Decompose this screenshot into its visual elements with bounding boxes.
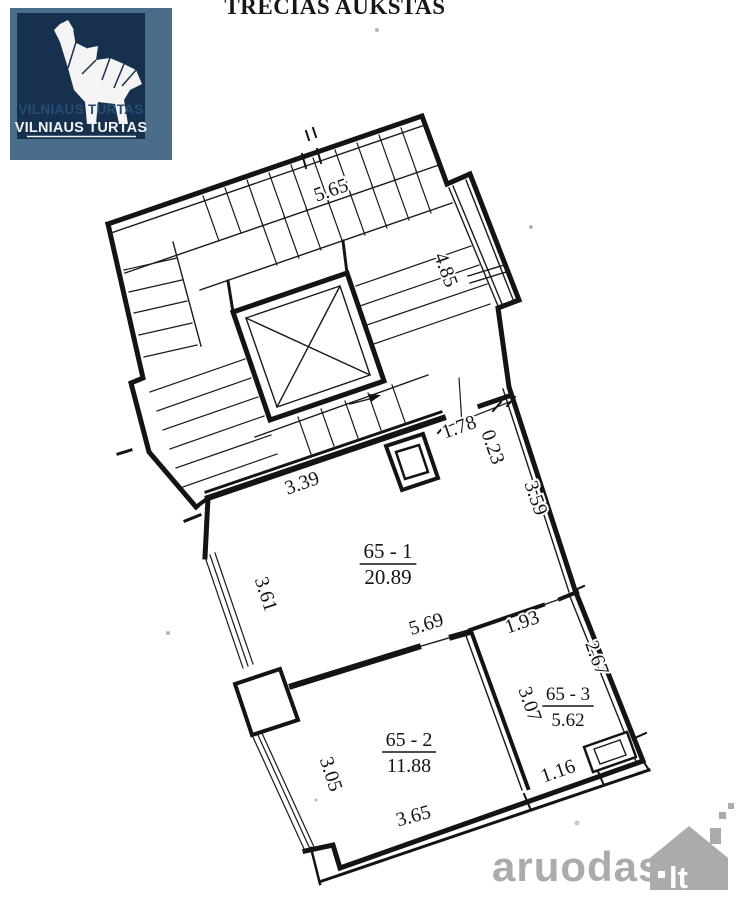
aruodas-watermark: aruodas lt [492, 803, 734, 895]
floorplan-page: TREČIAS AUKŠTAS VILNIAUS TURTAS VILNIAUS… [0, 0, 737, 900]
dimension-label: 4.85 [429, 250, 462, 290]
stair-direction-arrow [350, 394, 381, 404]
vilniaus-turtas-logo: VILNIAUS TURTAS VILNIAUS TURTAS [10, 8, 172, 160]
room-area-label: 5.62 [551, 710, 584, 731]
room-number-label: 65 - 3 [546, 684, 590, 705]
logo-shadow-text: VILNIAUS TURTAS [19, 102, 144, 117]
watermark-suffix: lt [669, 860, 688, 895]
dimension-label: 5.65 [311, 174, 351, 206]
watermark-text: aruodas [492, 843, 662, 890]
room-area-label: 20.89 [364, 565, 411, 589]
dimension-label: 5.69 [406, 609, 446, 640]
dimension-label: 3.61 [250, 574, 282, 614]
dimension-label: 2.67 [580, 638, 613, 678]
page-title: TREČIAS AUKŠTAS [160, 0, 510, 20]
dimension-label: 3.59 [520, 478, 552, 518]
dimension-label: 1.93 [502, 606, 542, 638]
logo-graphic: VILNIAUS TURTAS VILNIAUS TURTAS [10, 8, 172, 160]
logo-text: VILNIAUS TURTAS [15, 120, 148, 136]
dimension-label: 0.23 [477, 427, 509, 467]
duct-shaft [386, 434, 438, 490]
scan-specks [166, 28, 580, 826]
wall-pier [235, 669, 298, 735]
dimension-label: 1.16 [538, 755, 578, 787]
room-area-label: 11.88 [387, 755, 431, 777]
room-number-label: 65 - 2 [386, 729, 433, 751]
watermark-dot [658, 871, 665, 878]
dimension-label: 3.07 [514, 684, 546, 724]
room-labels: 65 - 120.8965 - 211.8865 - 35.62 [360, 539, 594, 777]
room-number-label: 65 - 1 [364, 539, 413, 563]
dimension-label: 3.05 [315, 754, 347, 794]
dimension-label: 3.65 [394, 801, 434, 831]
